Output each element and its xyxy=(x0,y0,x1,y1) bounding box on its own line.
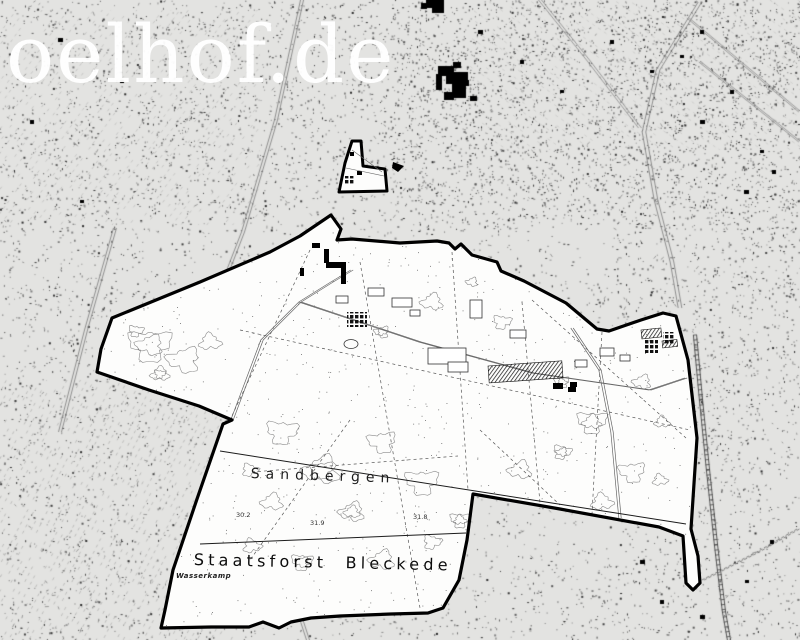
topographic-map-image: Sandbergen Staatsforst Bleckede Wasserka… xyxy=(0,0,800,640)
spot-height: 30.2 xyxy=(236,511,250,519)
spot-height: 31.8 xyxy=(413,513,427,521)
spot-height: 31.9 xyxy=(310,519,324,527)
map-label-wasserkamp: Wasserkamp xyxy=(176,573,231,580)
watermark-text: oelhof.de xyxy=(6,8,396,101)
